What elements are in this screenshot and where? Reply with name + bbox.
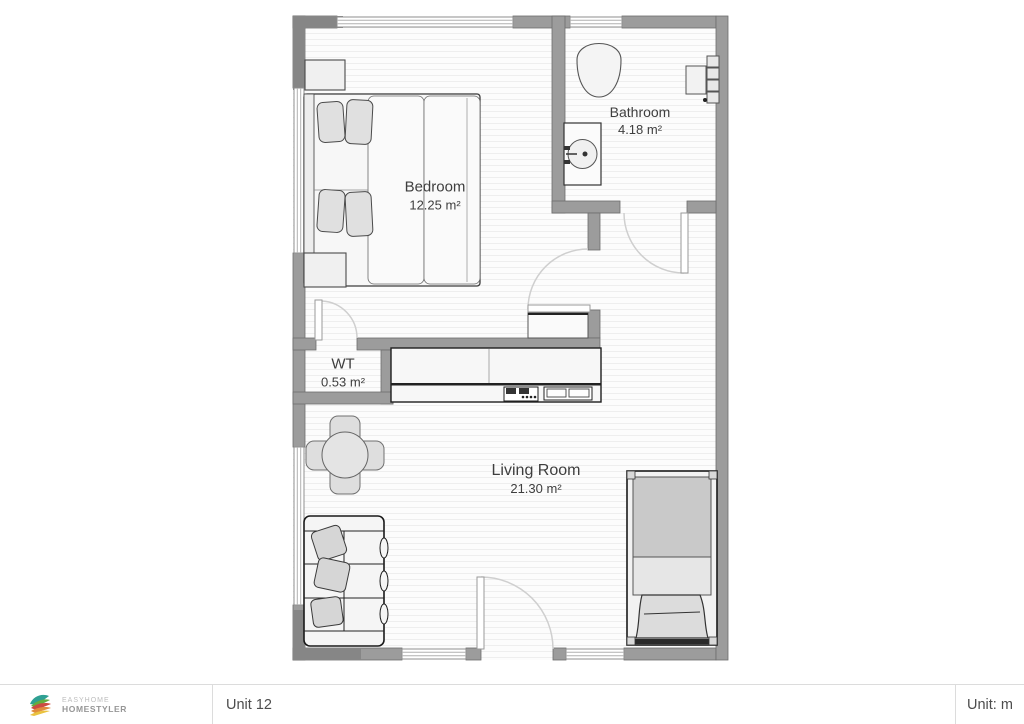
- homestyler-floorplan-page: Bedroom 12.25 m² Bathroom 4.18 m² WT 0.5…: [0, 0, 1024, 724]
- dining-set: [306, 416, 384, 494]
- room-area: 4.18 m²: [610, 122, 671, 138]
- wall-segment: [687, 201, 716, 213]
- window: [294, 447, 304, 605]
- room-label-bedroom: Bedroom 12.25 m²: [405, 179, 466, 214]
- homestyler-logo: EASYHOME HOMESTYLER: [28, 692, 127, 718]
- wall-segment: [293, 338, 316, 350]
- wall-segment: [588, 310, 600, 338]
- door-swing-arc: [528, 249, 588, 309]
- room-name: Bedroom: [405, 179, 466, 198]
- window: [566, 649, 624, 659]
- bedroom-door: [315, 300, 357, 340]
- bathroom-sink: [564, 123, 601, 185]
- bathroom-door: [624, 213, 688, 273]
- room-area: 0.53 m²: [321, 374, 365, 390]
- footer-divider: [955, 685, 956, 724]
- window: [402, 649, 466, 659]
- wall-accent: [293, 16, 305, 90]
- homestyler-logo-icon: [28, 692, 54, 718]
- footer-bar: EASYHOME HOMESTYLER Unit 12 Unit: m: [0, 684, 1024, 724]
- floorplan-drawing: [0, 0, 1024, 684]
- room-name: Bathroom: [610, 104, 671, 122]
- dining-table: [322, 432, 368, 478]
- wall-segment: [624, 648, 716, 660]
- kitchen-sink: [544, 387, 592, 400]
- room-label-wt: WT 0.53 m²: [321, 356, 365, 391]
- door-leaf: [477, 577, 484, 649]
- plan-region[interactable]: Bedroom 12.25 m² Bathroom 4.18 m² WT 0.5…: [0, 0, 1024, 684]
- door-leaf: [681, 213, 688, 273]
- room-area: 12.25 m²: [405, 197, 466, 213]
- unit-label: Unit: m: [967, 685, 1013, 724]
- nightstand: [304, 253, 346, 287]
- wall-segment: [622, 16, 716, 28]
- brand-bottom: HOMESTYLER: [62, 704, 127, 714]
- daybed: [627, 471, 717, 645]
- brand-text: EASYHOME HOMESTYLER: [62, 697, 127, 714]
- wall-segment: [553, 648, 566, 660]
- window: [294, 88, 304, 253]
- kitchen-counter: [391, 348, 601, 402]
- door-swing-arc: [481, 577, 553, 649]
- door-swing-arc: [624, 213, 684, 273]
- room-label-living-room: Living Room 21.30 m²: [492, 461, 581, 497]
- room-area: 21.30 m²: [492, 481, 581, 497]
- vanity-unit: [686, 56, 719, 103]
- project-name: Unit 12: [226, 685, 272, 724]
- room-label-bathroom: Bathroom 4.18 m²: [610, 104, 671, 138]
- footer-divider: [212, 685, 213, 724]
- door-leaf: [528, 305, 590, 312]
- door-swing-arc: [322, 301, 357, 338]
- wall-segment: [552, 16, 565, 213]
- window: [570, 17, 622, 27]
- sofa: [304, 516, 388, 646]
- entrance-door: [477, 577, 553, 649]
- hall-cabinet: [528, 313, 588, 338]
- brand-top: EASYHOME: [62, 697, 127, 704]
- nightstand: [305, 60, 345, 90]
- cooktop: [504, 387, 538, 401]
- toilet: [577, 44, 621, 98]
- window: [337, 17, 513, 27]
- room-name: WT: [321, 356, 365, 375]
- room-name: Living Room: [492, 461, 581, 481]
- wall-segment: [552, 201, 620, 213]
- wall-segment: [588, 213, 600, 250]
- door-leaf: [315, 300, 322, 340]
- wall-segment: [466, 648, 481, 660]
- wall-segment: [293, 392, 393, 404]
- hall-door: [528, 249, 590, 312]
